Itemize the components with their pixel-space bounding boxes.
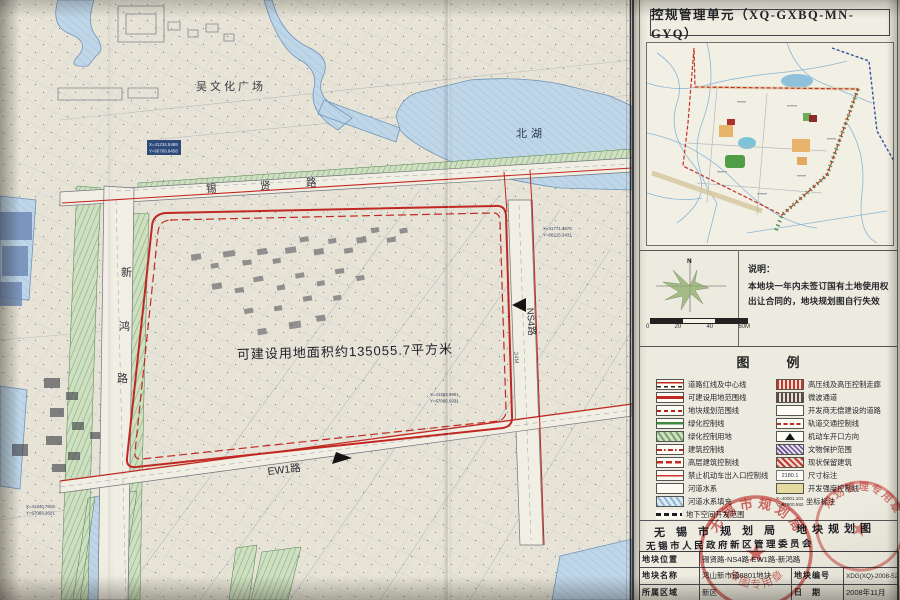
table-value: 新区 <box>700 585 792 600</box>
table-label: 日 期 <box>792 585 844 600</box>
table-value: 锡贤路-NS4路-EW1路-新鸿路 <box>700 552 898 568</box>
road-width-ns4: 24M <box>512 352 519 364</box>
legend-swatch <box>656 392 684 403</box>
plot-info-table: 地块位置 锡贤路-NS4路-EW1路-新鸿路 地块名称 鸿山新市镇8801地块 … <box>639 551 899 600</box>
legend-title: 图 例 <box>634 352 900 371</box>
legend-item: 禁止机动车出入口控制线 <box>656 469 768 482</box>
table-value: 鸿山新市镇8801地块 <box>700 568 792 584</box>
legend-column-left: 道路红线及中心线 可建设用地范围线 地块规划范围线 绿化控制线 绿化控制用地 建… <box>656 378 768 521</box>
table-label: 所属区域 <box>640 585 700 600</box>
plan-map-photo: 吴文化广场 北湖 锡 贤 路 新 鸿 路 NS4路 24M EW1路 可建设用地… <box>0 0 900 600</box>
svg-text:X=41340.7815: X=41340.7815 <box>26 504 55 509</box>
divider <box>738 250 739 346</box>
svg-text:新: 新 <box>121 265 132 279</box>
svg-text:锡: 锡 <box>206 182 217 195</box>
legend-swatch <box>776 457 804 468</box>
legend-item: 河道水系填充 <box>656 495 768 508</box>
legend-swatch <box>776 483 804 494</box>
minimap-park <box>725 155 745 168</box>
legend-swatch <box>776 405 804 416</box>
legend-swatch <box>776 418 804 429</box>
legend-swatch <box>656 379 684 390</box>
plaza-label: 吴文化广场 <box>196 79 266 93</box>
legend-swatch <box>656 510 682 519</box>
note-line: 本地块一年内未签订国有土地使用权 <box>748 279 896 294</box>
svg-text:Y=67083.2621: Y=67083.2621 <box>26 511 55 516</box>
note-title: 说明： <box>748 262 896 275</box>
legend-swatch <box>656 470 684 481</box>
table-label: 地块名称 <box>640 568 700 584</box>
legend-swatch <box>656 483 684 494</box>
table-label: 地块编号 <box>792 568 844 584</box>
legend-item: 道路红线及中心线 <box>656 378 768 391</box>
svg-text:X=41771.3678: X=41771.3678 <box>543 226 572 231</box>
legend-item: 文物保护范围 <box>776 443 881 456</box>
legend-swatch <box>776 444 804 455</box>
legend-item: 高压线及高压控制走廊 <box>776 378 881 391</box>
svg-text:Y=66215.3431: Y=66215.3431 <box>543 233 572 238</box>
svg-text:鸿: 鸿 <box>119 319 130 333</box>
panel-right-border <box>897 0 898 600</box>
table-value: 2008年11月 <box>844 585 898 600</box>
context-minimap <box>646 42 894 246</box>
note-line: 出让合同的，地块规划图自行失效 <box>748 294 896 309</box>
legend-item: 地块规划范围线 <box>656 404 768 417</box>
legend-item: 开发强度控制线 <box>776 482 881 495</box>
svg-text:X=41234.5489: X=41234.5489 <box>149 142 178 147</box>
legend-item: 微波通道 <box>776 391 881 404</box>
legend-item: 开发商无偿建设的道路 <box>776 404 881 417</box>
legend-column-right: 高压线及高压控制走廊 微波通道 开发商无偿建设的道路 轨道交通控制线 机动车开口… <box>776 378 881 508</box>
legend-item: 轨道交通控制线 <box>776 417 881 430</box>
wind-rose-icon: N <box>642 254 738 314</box>
legend-swatch <box>656 405 684 416</box>
svg-text:路: 路 <box>306 176 317 189</box>
minimap-pond <box>781 74 813 88</box>
scale-bar-labels: 020 4060M <box>646 324 750 330</box>
legend-item: 建筑控制线 <box>656 443 768 456</box>
divider <box>639 250 897 251</box>
svg-text:贤: 贤 <box>260 180 271 192</box>
legend-item: 高层建筑控制线 <box>656 456 768 469</box>
svg-text:路: 路 <box>117 372 128 385</box>
minimap-orange-block <box>797 157 807 165</box>
legend-swatch <box>776 379 804 390</box>
table-value: XDG(XQ)-2008-52号 <box>844 568 898 584</box>
minimap-orange-block <box>719 125 733 137</box>
main-map: 吴文化广场 北湖 锡 贤 路 新 鸿 路 NS4路 24M EW1路 可建设用地… <box>0 0 632 600</box>
legend-item: 可建设用地范围线 <box>656 391 768 404</box>
legend-swatch <box>656 418 684 429</box>
north-label: N <box>687 258 692 265</box>
legend-item: 机动车开口方向 <box>776 430 881 443</box>
legend-item: 河道水系 <box>656 482 768 495</box>
minimap-red-block <box>809 115 817 122</box>
legend-item: 绿化控制线 <box>656 417 768 430</box>
legend-swatch: 2180.1 <box>776 470 804 481</box>
road-label-ns4: NS4路 <box>524 307 538 336</box>
legend-item: X=40001.101Y=67900.582坐标标注 <box>776 495 881 508</box>
legend-swatch <box>656 496 684 507</box>
legend-swatch <box>656 431 684 442</box>
legend-swatch <box>776 392 804 403</box>
vehicle-opening-icon <box>776 431 804 442</box>
info-panel: 控规管理单元（XQ-GXBQ-MN-GYQ） <box>632 0 900 600</box>
legend-swatch: X=40001.101Y=67900.582 <box>776 497 802 506</box>
legend-item: 绿化控制用地 <box>656 430 768 443</box>
legend-item: 2180.1尺寸标注 <box>776 469 881 482</box>
note-block: 说明： 本地块一年内未签订国有土地使用权 出让合同的，地块规划图自行失效 <box>748 262 896 310</box>
minimap-pond <box>738 137 756 149</box>
authority-name-2: 无锡市人民政府新区管理委员会 <box>646 536 814 553</box>
minimap-red-block <box>727 119 735 125</box>
table-label: 地块位置 <box>640 552 700 568</box>
panel-inner-border <box>639 0 640 600</box>
svg-text:Y=66789.8458: Y=66789.8458 <box>149 149 178 154</box>
minimap-orange-block <box>792 139 810 152</box>
lake-label: 北湖 <box>516 127 546 140</box>
sheet-title: 控规管理单元（XQ-GXBQ-MN-GYQ） <box>650 9 890 36</box>
legend-swatch <box>656 457 684 468</box>
divider <box>639 346 897 347</box>
legend-swatch <box>656 444 684 455</box>
legend-item: 现状保留建筑 <box>776 456 881 469</box>
